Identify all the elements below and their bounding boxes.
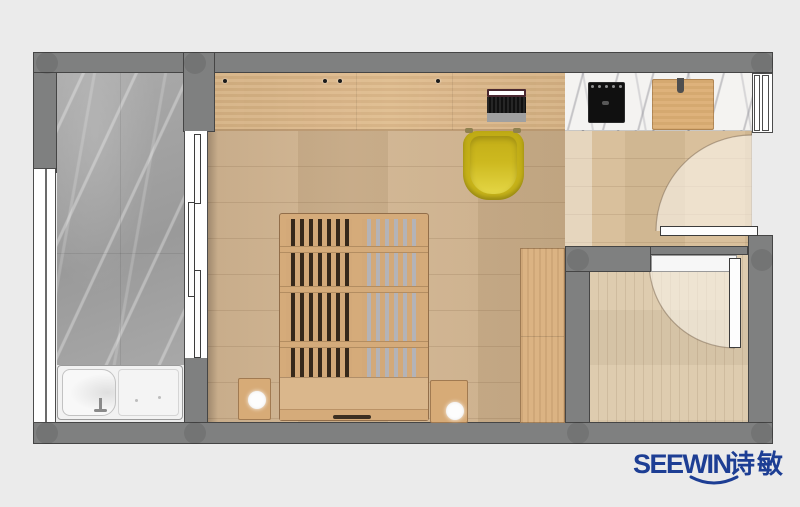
wall-side-room-left [565,246,590,423]
bed-rail [280,286,428,293]
desk-seam [452,73,453,130]
bed-slats-left [286,219,352,377]
structural-column [567,422,589,444]
cutting-board-handle [677,78,684,93]
wall-top [33,52,773,73]
brand-logo-chinese: 诗敏 [729,451,793,479]
structural-column [751,52,773,74]
bathtub-drain-dot [135,399,138,402]
bed-slats-right [362,219,420,377]
left-window-mullion [45,169,47,422]
laptop-palmrest [487,113,526,122]
wall-side-room-top-thin [650,246,748,255]
desk-seam [356,73,357,130]
structural-column [36,422,58,444]
right-window-pane [762,75,769,131]
floor-shadow [208,131,218,424]
structural-column [184,422,206,444]
chair-arm-tip [513,128,521,133]
chair-arm-tip [465,128,473,133]
corridor-light-band [565,131,592,246]
side-room-door-leaf [729,258,741,348]
wall-left [33,72,57,173]
floorplan-page: { "brand": { "name": "SEEWIN", "name_cn"… [0,0,800,507]
cooktop-controls [591,85,622,88]
bathtub-drain-dot [158,396,161,399]
wall-bathroom-divider-stub [184,357,208,423]
bathroom-tile-seam [57,253,184,254]
bed-lamp-right [446,402,464,420]
bathroom-tile-seam [120,73,121,365]
side-room-wood-floor [590,255,748,422]
entry-door-leaf [660,226,758,236]
desk-knob [223,79,227,83]
shower-sliding-door-panel [194,270,201,358]
structural-column [751,422,773,444]
bathtub-basin [62,369,116,416]
wardrobe-seam [521,336,564,337]
bed-rail [280,246,428,253]
structural-column [184,52,206,74]
right-window-pane [754,75,760,131]
bed-rail [280,341,428,348]
desk-knob [338,79,342,83]
laptop-keyboard [487,97,526,113]
desk-knob [323,79,327,83]
bathtub-faucet [94,409,107,412]
shower-sliding-door-panel [194,134,201,204]
bed-footboard [280,377,428,409]
structural-column [36,52,58,74]
structural-column [751,249,773,271]
side-room-door-threshold [651,255,737,272]
desk-knob [436,79,440,83]
structural-column [567,249,589,271]
bed-lamp-left [248,391,266,409]
laptop-screen [487,89,526,97]
cooktop-glare [602,101,609,105]
desk-chair-seat [470,136,517,194]
bathtub-deck [118,369,179,416]
wall-bottom [33,422,773,444]
bed-handle [333,415,371,419]
